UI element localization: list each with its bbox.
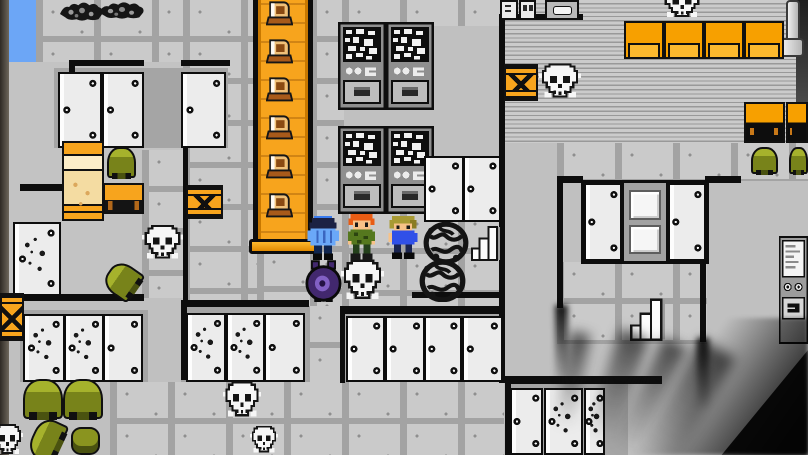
wire-ball	[423, 222, 469, 264]
skull	[539, 62, 581, 101]
panel	[226, 313, 265, 382]
table	[103, 183, 144, 214]
crate	[0, 293, 24, 341]
panel	[186, 313, 226, 382]
skull	[0, 423, 23, 455]
skull-icon	[142, 224, 183, 262]
conveyor-item-icon	[266, 1, 293, 27]
stairs	[470, 223, 501, 262]
wall-line	[181, 60, 230, 66]
skull-icon	[341, 258, 384, 303]
hat	[266, 193, 293, 219]
desk-front	[624, 21, 664, 59]
chair	[23, 379, 63, 419]
wall-line	[705, 176, 741, 183]
stairs-icon	[470, 223, 501, 262]
chair	[63, 379, 103, 419]
panel-wall	[584, 183, 622, 261]
panel	[510, 388, 543, 455]
panel-wall	[668, 183, 706, 261]
panel	[264, 313, 305, 382]
skull	[341, 258, 384, 303]
broken-tv-machine-icon	[386, 22, 434, 110]
wall-line	[181, 300, 309, 307]
desk-front	[704, 21, 744, 59]
chair	[751, 147, 778, 174]
conveyor-item-icon	[266, 39, 293, 65]
skull-icon	[662, 0, 702, 20]
skull-icon	[0, 423, 23, 455]
rubble-icon	[99, 0, 145, 19]
wall-line	[340, 306, 505, 314]
panel	[385, 316, 425, 382]
desk-dark	[786, 102, 808, 143]
appliance-buttons	[519, 0, 536, 20]
desk-front	[664, 21, 704, 59]
character-blue-icon	[305, 216, 341, 262]
wall-line	[557, 176, 563, 308]
crate	[504, 64, 538, 101]
wall-line	[183, 146, 188, 306]
desk-front	[744, 21, 784, 59]
panel	[102, 72, 144, 148]
plate-floor	[110, 382, 504, 455]
crate	[186, 185, 223, 219]
wire-ball	[419, 260, 466, 302]
panel	[23, 314, 65, 382]
panel	[64, 314, 104, 382]
panel	[13, 222, 61, 296]
machine-tv	[338, 126, 386, 214]
chair	[107, 147, 136, 178]
character-blue	[305, 216, 341, 262]
panel	[346, 316, 385, 382]
hat	[266, 115, 293, 141]
machine-tv	[338, 22, 386, 110]
edge-strip	[0, 0, 9, 455]
skull-icon	[223, 380, 261, 420]
rubble	[99, 0, 145, 19]
conveyor-item-icon	[266, 193, 293, 219]
panel	[463, 156, 501, 222]
broken-tv-machine-icon	[338, 22, 386, 110]
panel	[58, 72, 102, 148]
purple-blob-icon	[305, 260, 342, 302]
door-pane	[629, 225, 660, 255]
door-pane	[629, 190, 660, 220]
desk-dark	[744, 102, 785, 143]
bed	[62, 141, 104, 221]
panel	[424, 316, 462, 382]
wall-line	[340, 306, 345, 383]
hat	[266, 39, 293, 65]
skull	[142, 224, 183, 262]
rubble-icon	[60, 0, 104, 21]
conveyor-item-icon	[266, 77, 293, 103]
hat	[266, 154, 293, 180]
skull	[662, 0, 702, 20]
character-blonde-icon	[385, 216, 421, 260]
purple-blob	[305, 260, 342, 302]
stool	[71, 427, 100, 455]
wall-line	[70, 60, 144, 66]
skull-icon	[539, 62, 581, 101]
rubble	[60, 0, 104, 21]
game-viewport[interactable]	[0, 0, 808, 455]
character-blonde	[385, 216, 421, 260]
plate-floor	[183, 0, 257, 312]
machine-tv	[386, 22, 434, 110]
appliance-lines	[500, 0, 518, 20]
panel	[103, 314, 143, 382]
character-orange-icon	[344, 214, 379, 262]
chair	[25, 415, 70, 455]
appliance-slot	[545, 0, 579, 20]
door-panes	[622, 183, 667, 261]
hat	[266, 77, 293, 103]
broken-tv-machine-icon	[338, 126, 386, 214]
wire-ball-icon	[423, 222, 469, 264]
skull	[250, 425, 278, 455]
panel	[181, 72, 226, 148]
elevator	[581, 180, 709, 264]
skull-icon	[250, 425, 278, 455]
hat	[266, 1, 293, 27]
skull	[223, 380, 261, 420]
wire-ball-icon	[419, 260, 466, 302]
panel	[462, 316, 503, 382]
panel	[424, 156, 464, 222]
conveyor-item-icon	[266, 115, 293, 141]
chair	[789, 147, 808, 174]
conveyor-item-icon	[266, 154, 293, 180]
character-orange	[344, 214, 379, 262]
